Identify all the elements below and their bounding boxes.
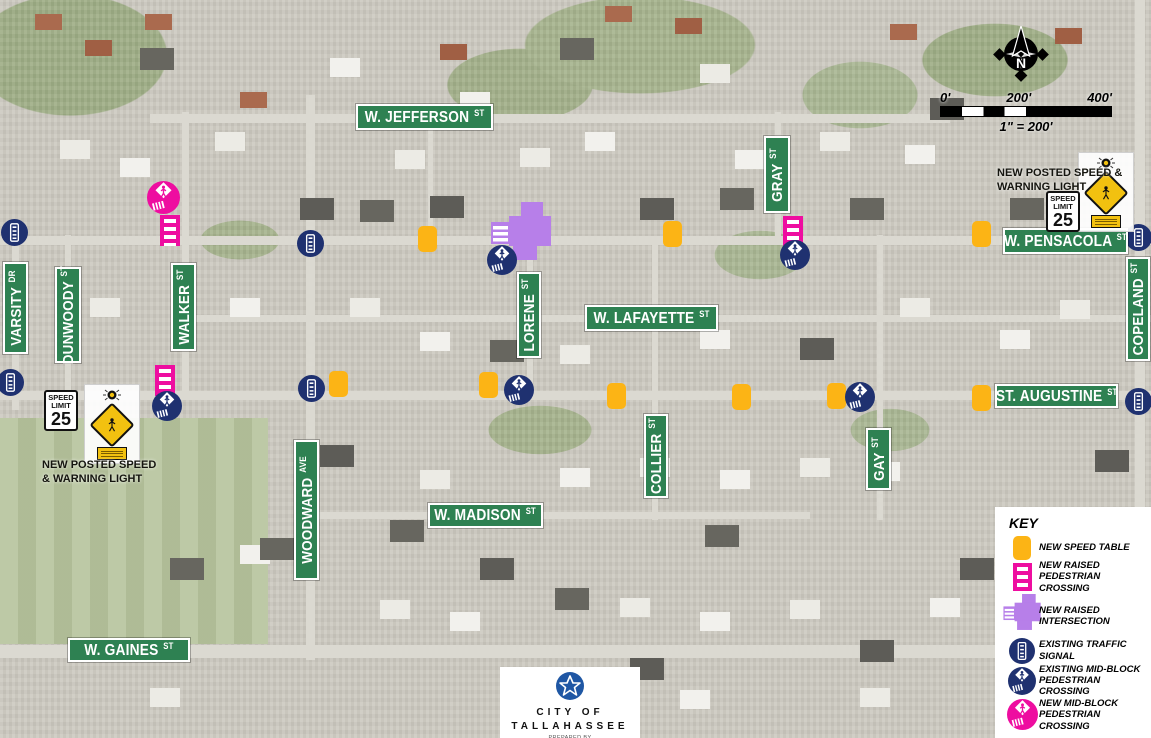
speed-limit-25-sign: SPEEDLIMIT25 <box>44 390 78 431</box>
raised-pedestrian-crossing-icon <box>1013 563 1032 591</box>
legend-item-label: NEW RAISED PEDESTRIAN CROSSING <box>1039 560 1145 594</box>
legend-icon-cell <box>1005 638 1039 664</box>
street-sign-dunwoody: DUNWOODY ST <box>55 267 81 363</box>
legend-icon-cell <box>1005 667 1039 695</box>
existing-mid-block-pedestrian-crossing-marker <box>845 382 875 412</box>
legend-item-existing-mid-block-crossing: EXISTING MID-BLOCK PEDESTRIAN CROSSING <box>1005 664 1145 698</box>
existing-mid-block-pedestrian-crossing-marker <box>152 391 182 421</box>
legend-item-label: EXISTING TRAFFIC SIGNAL <box>1039 639 1145 662</box>
existing-traffic-signal-marker <box>297 230 324 257</box>
existing-traffic-signal-marker <box>1125 388 1151 415</box>
legend-icon-cell <box>1005 563 1039 591</box>
north-arrow: N <box>993 26 1049 89</box>
new-speed-table-marker <box>479 372 498 398</box>
new-speed-table-marker <box>329 371 348 397</box>
new-posted-speed-note: NEW POSTED SPEED & WARNING LIGHT <box>42 458 156 487</box>
existing-traffic-signal-marker <box>1 219 28 246</box>
city-of-tallahassee-logo-icon <box>555 671 585 701</box>
legend-item-speed-table: NEW SPEED TABLE <box>1005 535 1145 560</box>
existing-mid-block-pedestrian-crossing-marker <box>504 375 534 405</box>
new-speed-table-marker <box>663 221 682 247</box>
street-name-label: COPELAND ST <box>1129 263 1147 356</box>
legend-item-label: NEW SPEED TABLE <box>1039 542 1130 553</box>
new-speed-table-marker <box>732 384 751 410</box>
pedestrian-crossing-diamond-sign <box>89 402 134 447</box>
street-name-label: LORENE ST <box>520 279 538 352</box>
scale-ratio: 1" = 200' <box>940 119 1112 134</box>
existing-mid-block-pedestrian-crossing-marker <box>780 240 810 270</box>
new-mid-block-pedestrian-crossing-marker <box>147 181 180 214</box>
new-speed-table-marker <box>827 383 846 409</box>
speed-table-icon <box>1013 536 1031 560</box>
new-mid-block-pedestrian-crossing-icon <box>1007 699 1038 730</box>
street-sign-collier: COLLIER ST <box>644 414 668 498</box>
street-name-label: DUNWOODY ST <box>59 266 77 364</box>
pedestrian-warning-sign-assembly <box>84 384 140 464</box>
road-horizontal <box>300 512 810 519</box>
speed-limit-value: 25 <box>1048 211 1078 229</box>
street-sign-copeland: COPELAND ST <box>1126 257 1150 361</box>
scale-bar: 0' 200' 400' 1" = 200' <box>940 90 1112 134</box>
road-vertical <box>428 118 433 240</box>
street-name-label: W. PENSACOLA ST <box>1004 232 1127 251</box>
new-speed-table-marker <box>972 221 991 247</box>
legend-icon-cell <box>1005 699 1039 730</box>
logo-city-top: CITY OF <box>500 706 640 720</box>
street-name-label: COLLIER ST <box>647 418 665 494</box>
scale-bar-graphic <box>940 106 1112 117</box>
street-name-label: W. MADISON ST <box>435 506 537 525</box>
legend-item-label: EXISTING MID-BLOCK PEDESTRIAN CROSSING <box>1039 664 1145 698</box>
street-sign-w-lafayette: W. LAFAYETTE ST <box>585 305 718 331</box>
speed-limit-words: SPEEDLIMIT <box>1048 195 1078 211</box>
road-vertical <box>182 112 189 400</box>
warning-light-icon <box>102 387 122 402</box>
street-sign-gray: GRAY ST <box>764 136 790 213</box>
street-sign-w-gaines: W. GAINES ST <box>68 638 190 662</box>
street-name-label: W. LAFAYETTE ST <box>593 309 709 328</box>
street-name-label: WALKER ST <box>175 269 193 344</box>
speed-limit-value: 25 <box>46 410 76 428</box>
existing-mid-block-pedestrian-crossing-marker <box>487 245 517 275</box>
street-name-label: VARSITY DR <box>7 270 25 345</box>
street-sign-varsity: VARSITY DR <box>3 262 28 354</box>
legend-title: KEY <box>1009 515 1145 531</box>
city-logo-box: CITY OF TALLAHASSEE PREPARED BY PUBLIC I… <box>500 667 640 738</box>
street-sign-lorene: LORENE ST <box>517 272 541 358</box>
legend-item-raised-intersection: NEW RAISED INTERSECTION <box>1005 594 1145 637</box>
new-speed-table-marker <box>418 226 437 252</box>
street-name-label: W. JEFFERSON ST <box>365 108 485 127</box>
scale-tick-400: 400' <box>1087 90 1112 105</box>
street-name-label: ST. AUGUSTINE ST <box>996 387 1118 406</box>
legend-icon-cell <box>1005 594 1039 637</box>
street-name-label: GAY ST <box>870 437 888 481</box>
legend-item-traffic-signal: EXISTING TRAFFIC SIGNAL <box>1005 638 1145 664</box>
existing-traffic-signal-marker <box>0 369 24 396</box>
new-speed-table-marker <box>607 383 626 409</box>
street-sign-walker: WALKER ST <box>171 263 196 351</box>
street-name-label: GRAY ST <box>768 148 786 202</box>
street-sign-st-augustine: ST. AUGUSTINE ST <box>995 384 1118 408</box>
legend-icon-cell <box>1005 536 1039 560</box>
legend-item-label: NEW MID-BLOCK PEDESTRIAN CROSSING <box>1039 698 1145 732</box>
traffic-improvement-site-plan: W. JEFFERSON STW. PENSACOLA STW. LAFAYET… <box>0 0 1151 738</box>
street-name-label: W. GAINES ST <box>84 641 173 660</box>
new-raised-pedestrian-crossing-marker <box>160 215 180 246</box>
legend-item-new-mid-block-crossing: NEW MID-BLOCK PEDESTRIAN CROSSING <box>1005 698 1145 732</box>
buildings-red-roof <box>0 0 27 16</box>
existing-traffic-signal-marker <box>298 375 325 402</box>
scale-tick-0: 0' <box>940 90 950 105</box>
speed-limit-words: SPEEDLIMIT <box>46 394 76 410</box>
street-sign-w-madison: W. MADISON ST <box>428 503 543 528</box>
legend: KEY NEW SPEED TABLENEW RAISED PEDESTRIAN… <box>995 507 1151 738</box>
legend-item-raised-pedestrian-crossing: NEW RAISED PEDESTRIAN CROSSING <box>1005 560 1145 594</box>
street-name-label: WOODWARD AVE <box>298 456 316 564</box>
new-speed-table-marker <box>972 385 991 411</box>
traffic-signal-icon <box>1009 638 1035 664</box>
speed-limit-25-sign: SPEEDLIMIT25 <box>1046 191 1080 232</box>
street-sign-gay: GAY ST <box>866 428 891 490</box>
north-label: N <box>1016 55 1026 71</box>
legend-item-label: NEW RAISED INTERSECTION <box>1039 605 1110 628</box>
existing-mid-block-pedestrian-crossing-icon <box>1008 667 1036 695</box>
street-sign-woodward: WOODWARD AVE <box>294 440 319 580</box>
road-horizontal <box>150 114 950 123</box>
street-sign-w-jefferson: W. JEFFERSON ST <box>356 104 493 130</box>
supplemental-plaque <box>1091 215 1121 228</box>
logo-city-bottom: TALLAHASSEE <box>500 720 640 734</box>
scale-tick-200: 200' <box>1006 90 1031 105</box>
